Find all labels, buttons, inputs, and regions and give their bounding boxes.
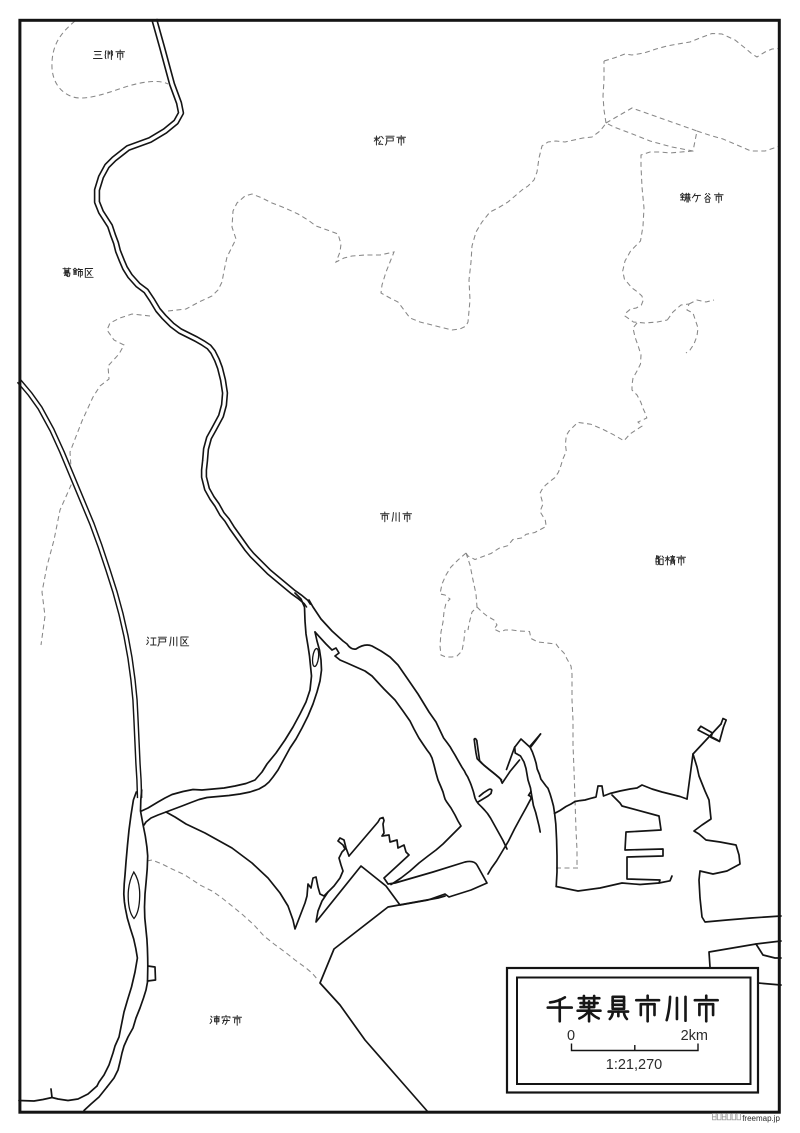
svg-text:freemap.jp: freemap.jp bbox=[742, 1114, 780, 1123]
svg-text:2km: 2km bbox=[681, 1028, 708, 1044]
svg-text:1:21,270: 1:21,270 bbox=[606, 1057, 662, 1073]
svg-text:0: 0 bbox=[567, 1028, 575, 1044]
